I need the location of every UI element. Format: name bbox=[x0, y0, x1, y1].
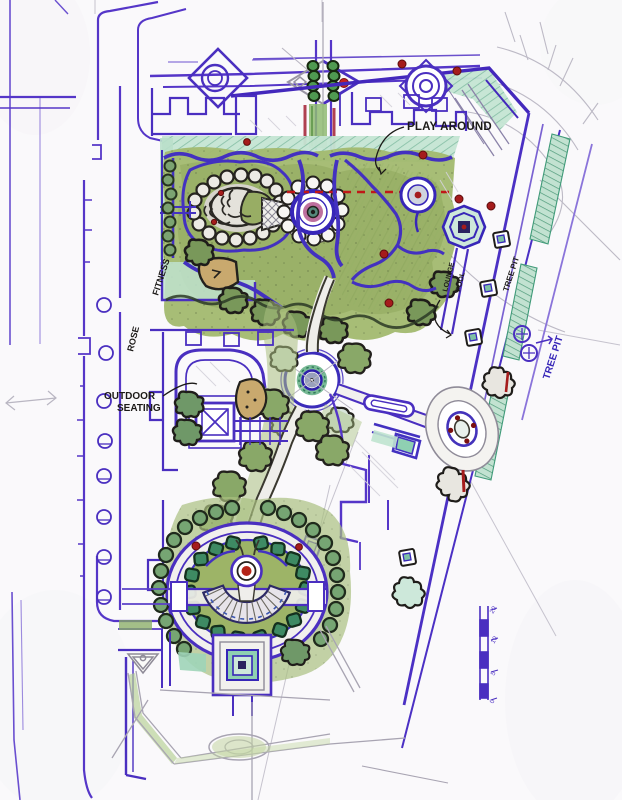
svg-text:SEATING: SEATING bbox=[117, 403, 161, 414]
svg-text:PLAY AROUND: PLAY AROUND bbox=[407, 121, 492, 133]
svg-text:OUTDOOR: OUTDOOR bbox=[104, 391, 156, 402]
